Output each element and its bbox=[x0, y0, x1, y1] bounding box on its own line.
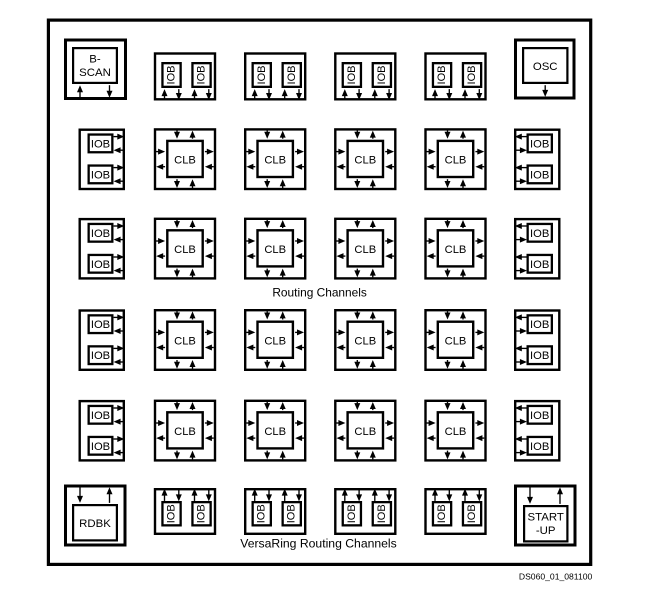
svg-text:IOB: IOB bbox=[91, 169, 110, 181]
svg-text:IOB: IOB bbox=[466, 504, 478, 523]
svg-text:DS060_01_081100: DS060_01_081100 bbox=[519, 571, 593, 581]
svg-text:CLB: CLB bbox=[174, 244, 196, 256]
svg-text:CLB: CLB bbox=[264, 426, 286, 438]
svg-text:IOB: IOB bbox=[256, 66, 268, 85]
svg-text:SCAN: SCAN bbox=[79, 67, 111, 79]
svg-text:IOB: IOB bbox=[91, 319, 110, 331]
svg-text:START: START bbox=[528, 512, 564, 524]
svg-text:CLB: CLB bbox=[445, 335, 467, 347]
svg-text:CLB: CLB bbox=[445, 155, 467, 167]
svg-text:IOB: IOB bbox=[530, 259, 549, 271]
svg-text:CLB: CLB bbox=[445, 244, 467, 256]
svg-text:IOB: IOB bbox=[286, 66, 298, 85]
svg-text:IOB: IOB bbox=[166, 66, 178, 85]
svg-text:IOB: IOB bbox=[286, 504, 298, 523]
svg-text:IOB: IOB bbox=[346, 504, 358, 523]
svg-text:IOB: IOB bbox=[376, 66, 388, 85]
svg-text:IOB: IOB bbox=[466, 66, 478, 85]
svg-text:IOB: IOB bbox=[530, 350, 549, 362]
svg-text:CLB: CLB bbox=[174, 155, 196, 167]
svg-text:IOB: IOB bbox=[91, 350, 110, 362]
svg-text:IOB: IOB bbox=[530, 169, 549, 181]
svg-text:CLB: CLB bbox=[174, 426, 196, 438]
svg-text:CLB: CLB bbox=[264, 335, 286, 347]
svg-text:CLB: CLB bbox=[264, 155, 286, 167]
svg-text:CLB: CLB bbox=[354, 244, 376, 256]
svg-text:B-: B- bbox=[89, 54, 101, 66]
svg-text:CLB: CLB bbox=[445, 426, 467, 438]
svg-text:CLB: CLB bbox=[354, 335, 376, 347]
svg-text:CLB: CLB bbox=[354, 155, 376, 167]
svg-text:IOB: IOB bbox=[530, 228, 549, 240]
svg-text:IOB: IOB bbox=[91, 228, 110, 240]
svg-text:IOB: IOB bbox=[166, 504, 178, 523]
svg-text:VersaRing Routing Channels: VersaRing Routing Channels bbox=[240, 537, 397, 551]
svg-text:Routing Channels: Routing Channels bbox=[272, 286, 367, 300]
svg-text:IOB: IOB bbox=[530, 410, 549, 422]
svg-text:CLB: CLB bbox=[174, 335, 196, 347]
svg-text:IOB: IOB bbox=[256, 504, 268, 523]
svg-text:IOB: IOB bbox=[436, 504, 448, 523]
svg-text:OSC: OSC bbox=[533, 61, 558, 73]
svg-text:IOB: IOB bbox=[436, 66, 448, 85]
svg-text:IOB: IOB bbox=[91, 138, 110, 150]
svg-text:IOB: IOB bbox=[530, 319, 549, 331]
svg-text:-UP: -UP bbox=[536, 525, 556, 537]
svg-text:IOB: IOB bbox=[346, 66, 358, 85]
svg-text:IOB: IOB bbox=[376, 504, 388, 523]
svg-text:IOB: IOB bbox=[530, 138, 549, 150]
svg-text:IOB: IOB bbox=[91, 441, 110, 453]
svg-text:IOB: IOB bbox=[530, 441, 549, 453]
svg-text:CLB: CLB bbox=[264, 244, 286, 256]
svg-text:CLB: CLB bbox=[354, 426, 376, 438]
svg-text:IOB: IOB bbox=[196, 504, 208, 523]
svg-text:IOB: IOB bbox=[91, 410, 110, 422]
svg-text:RDBK: RDBK bbox=[79, 518, 111, 530]
svg-text:IOB: IOB bbox=[91, 259, 110, 271]
svg-text:IOB: IOB bbox=[196, 66, 208, 85]
